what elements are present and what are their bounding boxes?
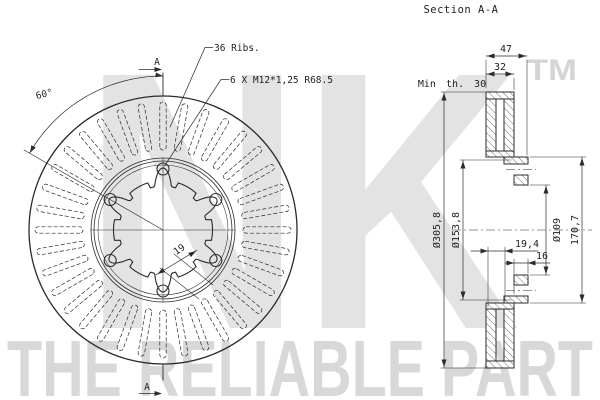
pad-depth-label: 19,4 [515, 239, 539, 250]
technical-drawing-page: NK TM THE RELIABLE PART A A 36 Ribs. [0, 0, 600, 400]
min-thickness-label: Min th. 30 [418, 79, 486, 90]
section-title: Section A-A [423, 4, 498, 16]
arrowhead [544, 186, 549, 194]
ribs-count-label: 36 Ribs. [214, 43, 260, 54]
overall-width-label: 47 [500, 44, 512, 55]
hat-corner [504, 296, 528, 303]
vent-slot [36, 205, 84, 220]
mounting-flange [514, 275, 528, 285]
bolt-spec-label: 6 X M12*1,25 R68.5 [230, 75, 333, 86]
trademark-watermark: TM [527, 54, 577, 87]
hat-step-diameter-label: Ø153,8 [450, 212, 462, 248]
angle-label: 60° [35, 87, 54, 102]
angle-annotation: 60° [35, 87, 54, 102]
outer-rim-joint [486, 92, 514, 99]
inboard-plate [504, 99, 514, 151]
arrowhead [544, 267, 549, 275]
vent-slot [35, 227, 83, 233]
arrowhead [580, 295, 585, 303]
vent-slot [36, 241, 84, 256]
hat-corner [504, 157, 528, 164]
thickness-label: 32 [494, 62, 506, 73]
cut-label-top: A [154, 57, 160, 68]
outer-rim-joint [486, 361, 514, 368]
cut-label-bottom: A [144, 382, 150, 393]
outboard-plate [486, 99, 496, 151]
outboard-plate [486, 309, 496, 361]
vent-slot [42, 254, 89, 276]
hat-outer-diameter-label: 170,7 [570, 215, 581, 245]
center-bore-label: Ø109 [551, 218, 563, 242]
vent-root-joint [486, 303, 514, 309]
brake-disc-drawing: NK TM THE RELIABLE PART A A 36 Ribs. [0, 0, 600, 400]
vent-root-joint [486, 151, 514, 157]
outer-diameter-label: Ø305,8 [431, 212, 443, 248]
mounting-flange [514, 175, 528, 185]
arrowhead [519, 54, 527, 59]
inboard-plate [504, 309, 514, 361]
arrowhead [580, 158, 585, 166]
flange-thickness-label: 16 [536, 251, 548, 262]
arrowhead [528, 261, 536, 266]
